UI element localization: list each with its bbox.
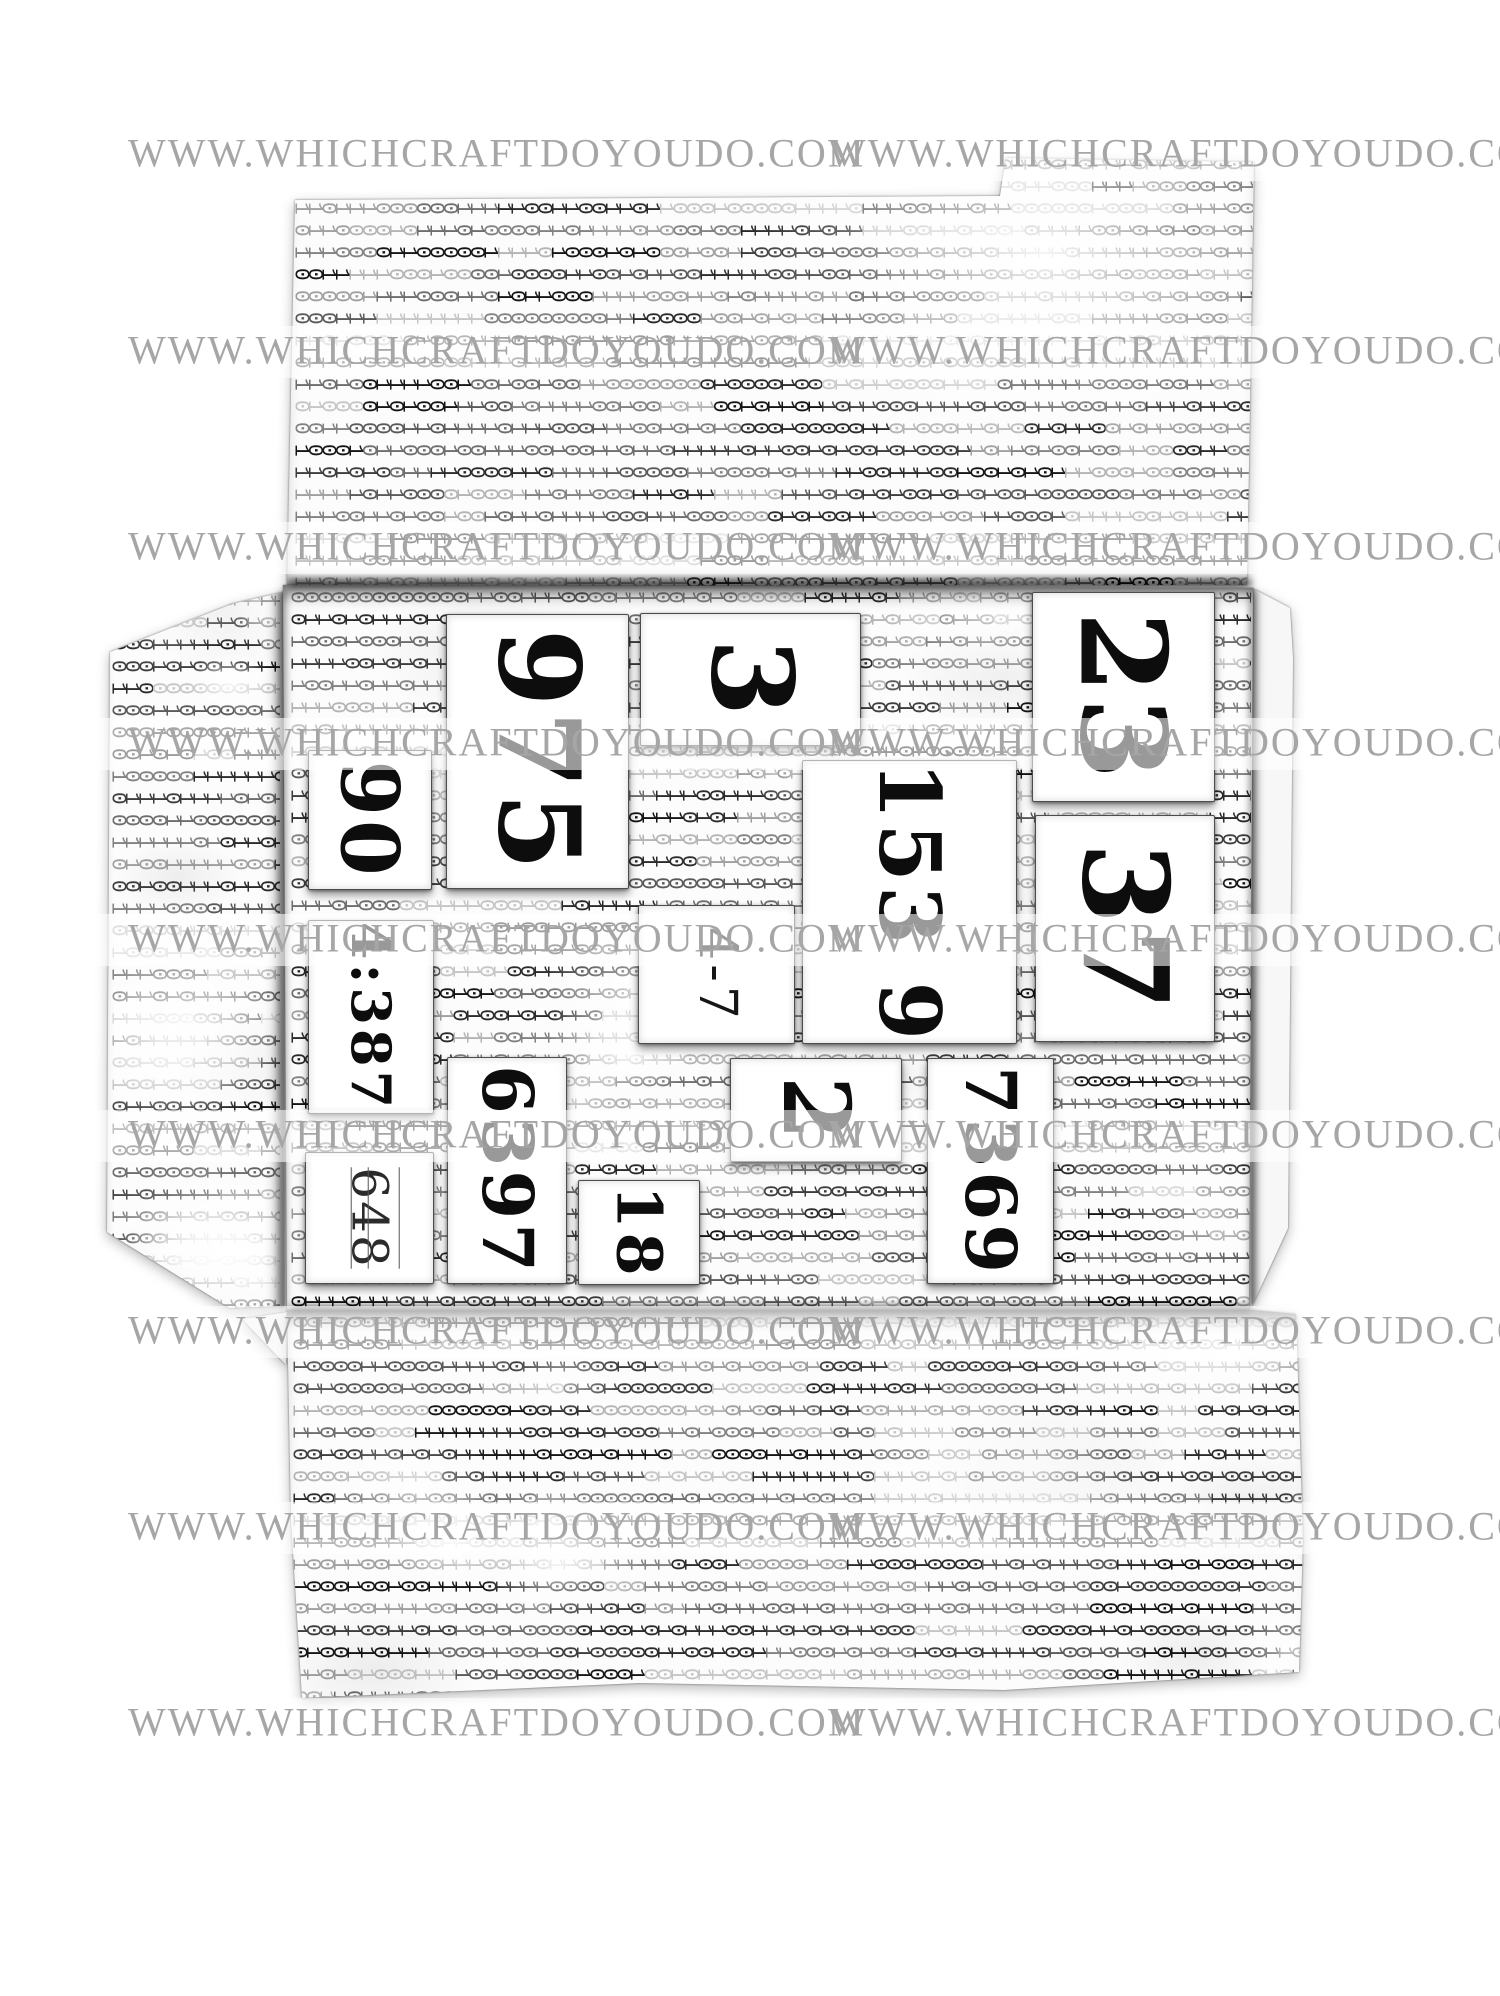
tag-number: 2 <box>762 1076 870 1144</box>
number-tag: 2 <box>730 1058 902 1162</box>
number-tag: 975 <box>446 614 629 889</box>
number-tag: 37 <box>1035 815 1215 1042</box>
tag-number: 153 9 <box>860 760 959 1043</box>
footer: Digital Designs WWW.WHICHCRAFTDOYOUDO.CO… <box>0 1846 1500 1996</box>
number-tags-layer: 9753233790153 94-74:38763976481827369 <box>0 0 1500 1996</box>
number-tag: 4-7 <box>638 905 795 1044</box>
tag-number: 23 <box>1054 611 1193 783</box>
number-tag: 7369 <box>927 1058 1054 1284</box>
tag-number: 6397 <box>466 1065 549 1276</box>
tag-number: 4-7 <box>687 927 747 1023</box>
number-tag: 153 9 <box>802 760 1017 1044</box>
tag-number: 37 <box>1056 842 1195 1014</box>
number-tag: 4:387 <box>308 920 434 1114</box>
tag-number: 7369 <box>949 1066 1032 1277</box>
number-tag: 18 <box>578 1180 700 1285</box>
tag-number: 648 <box>341 1167 399 1268</box>
tag-number: 3 <box>685 639 816 721</box>
number-tag: 23 <box>1032 592 1215 802</box>
tag-number: 18 <box>603 1185 676 1279</box>
number-tag: 90 <box>308 750 432 890</box>
number-tag: 3 <box>640 613 861 746</box>
tag-number: 975 <box>472 629 603 875</box>
number-tag: 648 <box>305 1152 434 1284</box>
tag-number: 4:387 <box>339 922 403 1112</box>
number-tag: 6397 <box>447 1057 567 1284</box>
tag-number: 90 <box>323 760 417 879</box>
craft-sheet-page: 0000010000011000100000011111000010000001… <box>0 0 1500 1996</box>
